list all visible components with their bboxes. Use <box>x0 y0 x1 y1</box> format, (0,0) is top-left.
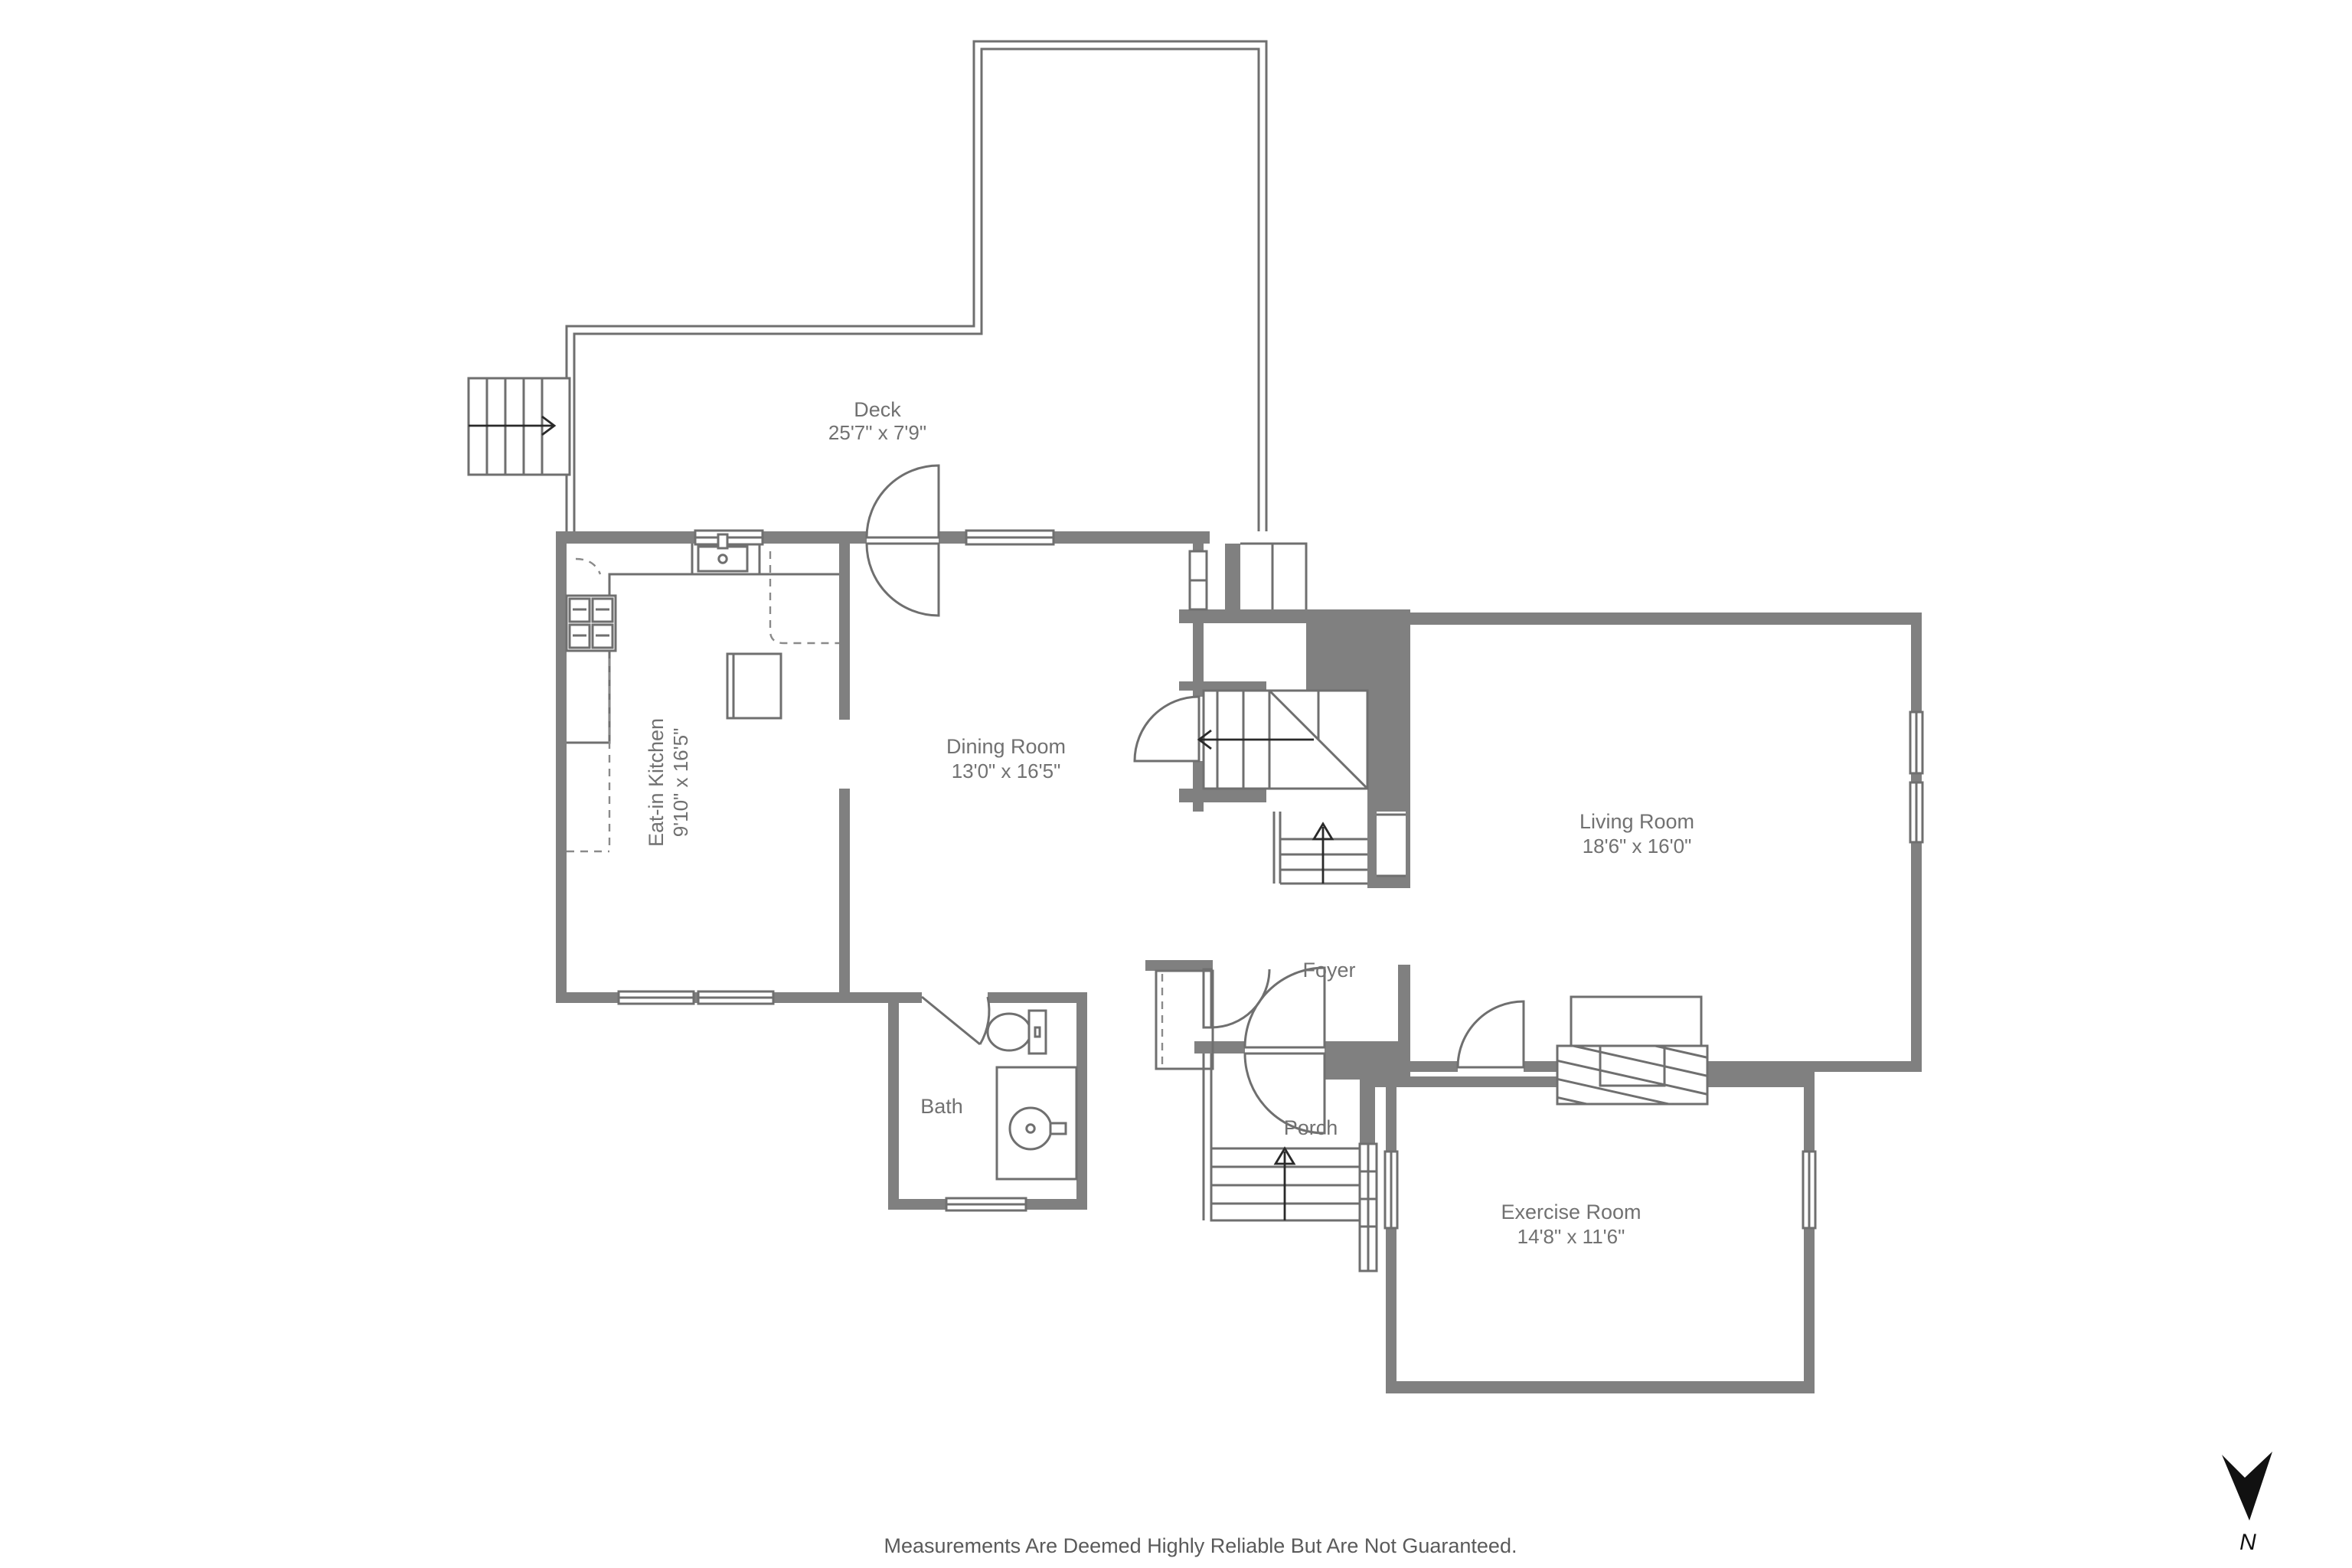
north-arrow-icon <box>2222 1452 2272 1521</box>
room-label-bath: Bath <box>920 1095 963 1118</box>
north-compass: N <box>2222 1452 2272 1555</box>
room-label-kitchen: Eat-in Kitchen <box>645 718 668 847</box>
room-dims-dining: 13'0" x 16'5" <box>952 759 1061 782</box>
room-label-deck: Deck <box>854 398 901 421</box>
room-label-foyer: Foyer <box>1302 959 1355 982</box>
room-label-living: Living Room <box>1579 810 1694 833</box>
room-label-dining: Dining Room <box>946 735 1066 758</box>
room-dims-kitchen: 9'10" x 16'5" <box>669 728 692 838</box>
windows <box>619 531 1922 1228</box>
kitchen-fixtures <box>567 534 839 851</box>
bath-fixtures <box>988 1011 1076 1179</box>
porch-railing <box>1360 1144 1377 1271</box>
kitchen-island <box>727 654 781 718</box>
stove-icon <box>567 596 616 651</box>
room-dims-deck: 25'7" x 7'9" <box>828 421 926 444</box>
porch-steps <box>1204 1053 1377 1271</box>
fireplace <box>1539 997 1730 1136</box>
room-dims-exercise: 14'8" x 11'6" <box>1517 1225 1625 1248</box>
disclaimer-text: Measurements Are Deemed Highly Reliable … <box>884 1534 1517 1557</box>
toilet-icon <box>988 1011 1046 1053</box>
floor-plan-page: Deck 25'7" x 7'9" Eat-in Kitchen 9'10" x… <box>0 0 2352 1568</box>
stair-closet <box>1240 544 1306 609</box>
room-dims-living: 18'6" x 16'0" <box>1583 835 1692 857</box>
main-staircase <box>1199 691 1367 789</box>
basement-staircase <box>1274 812 1367 884</box>
room-label-porch: Porch <box>1284 1116 1338 1139</box>
room-label-exercise: Exercise Room <box>1501 1200 1641 1223</box>
bath-vanity-sink-icon <box>997 1067 1076 1179</box>
north-label: N <box>2239 1530 2256 1555</box>
deck-stairs <box>469 378 570 475</box>
floor-plan-canvas: Deck 25'7" x 7'9" Eat-in Kitchen 9'10" x… <box>0 0 2352 1568</box>
deck-outline <box>567 41 1266 531</box>
